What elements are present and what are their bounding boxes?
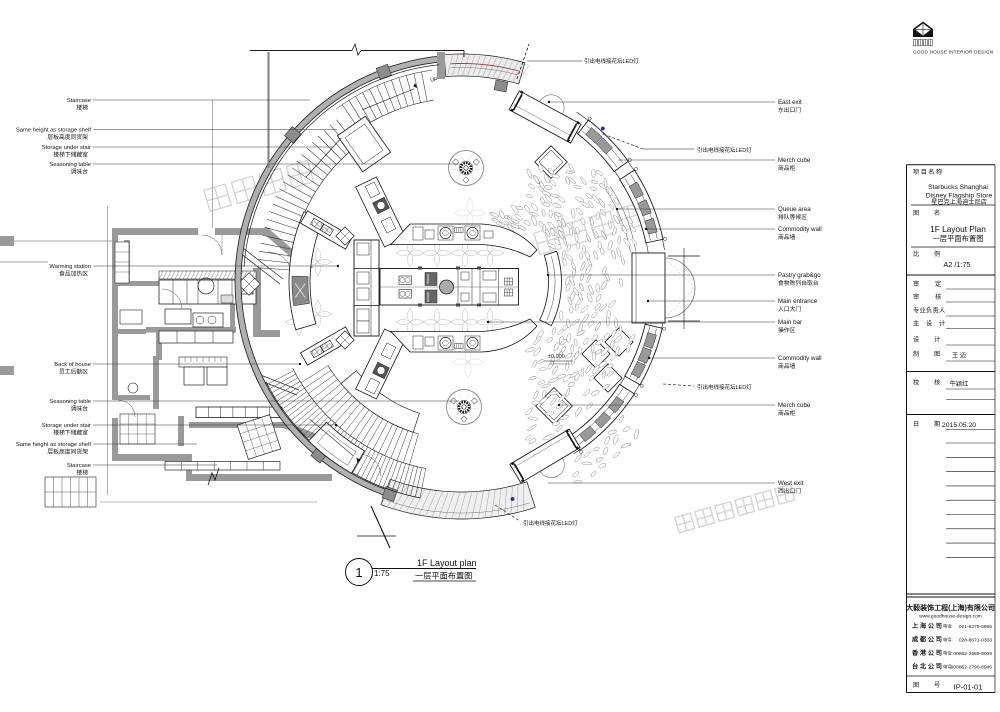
svg-text:图: 图 <box>913 682 919 689</box>
svg-text:电话:: 电话: <box>943 650 953 657</box>
svg-text:028-8671-0303: 028-8671-0303 <box>959 638 992 644</box>
svg-text:Pastry grab&go: Pastry grab&go <box>778 272 821 279</box>
svg-text:UP: UP <box>430 78 438 84</box>
svg-text:业: 业 <box>920 307 926 315</box>
svg-text:审: 审 <box>913 280 919 288</box>
svg-text:日: 日 <box>913 421 919 428</box>
svg-text:号: 号 <box>934 682 940 689</box>
svg-text:员工后勤区: 员工后勤区 <box>59 368 88 376</box>
svg-text:Same height as storage shelf: Same height as storage shelf <box>16 128 91 134</box>
svg-text:Starbucks Shanghai: Starbucks Shanghai <box>928 184 988 191</box>
svg-text:名: 名 <box>928 168 934 176</box>
svg-text:设: 设 <box>926 320 932 328</box>
svg-text:设: 设 <box>913 336 919 344</box>
svg-text:排队等候区: 排队等候区 <box>778 213 807 221</box>
svg-text:商品墙: 商品墙 <box>778 362 796 370</box>
svg-text:商品墙: 商品墙 <box>778 233 796 241</box>
svg-text:东出口门: 东出口门 <box>778 106 801 114</box>
svg-text:制: 制 <box>913 350 919 358</box>
svg-text:楼梯: 楼梯 <box>76 104 88 112</box>
svg-text:电话:: 电话: <box>943 636 953 643</box>
svg-text:Storage under stair: Storage under stair <box>42 423 91 429</box>
svg-text:±0.000: ±0.000 <box>548 354 565 360</box>
svg-text:Back of house: Back of house <box>54 362 91 368</box>
svg-text:电话:: 电话: <box>943 623 953 630</box>
svg-text:台 北 公 司: 台 北 公 司 <box>912 663 942 671</box>
svg-text:例: 例 <box>934 250 940 258</box>
svg-text:图: 图 <box>934 351 940 358</box>
svg-text:www.goodhouse-design.com: www.goodhouse-design.com <box>919 614 982 620</box>
svg-text:2015.05.20: 2015.05.20 <box>942 422 976 429</box>
svg-text:楼梯下储藏室: 楼梯下储藏室 <box>53 429 88 437</box>
svg-text:名: 名 <box>934 209 940 217</box>
svg-text:Merch cube: Merch cube <box>778 157 811 164</box>
svg-text:Staircase: Staircase <box>67 463 91 469</box>
svg-text:西出口门: 西出口门 <box>778 487 801 495</box>
svg-text:1:75: 1:75 <box>374 569 390 578</box>
svg-text:一层平面布置图: 一层平面布置图 <box>932 234 983 243</box>
svg-text:王 迈: 王 迈 <box>952 352 966 360</box>
svg-text:引出电线接花坛LED灯: 引出电线接花坛LED灯 <box>697 146 752 154</box>
svg-text:Commodity wall: Commodity wall <box>778 226 822 233</box>
svg-text:008862-2790-8946: 008862-2790-8946 <box>951 665 993 671</box>
svg-text:引出电线接花坛LED灯: 引出电线接花坛LED灯 <box>523 519 578 527</box>
svg-text:00852-2559-9009: 00852-2559-9009 <box>953 651 992 657</box>
svg-text:香 港 公 司: 香 港 公 司 <box>911 649 942 657</box>
svg-text:A2 /1:75: A2 /1:75 <box>943 260 970 269</box>
svg-text:专: 专 <box>913 307 919 315</box>
svg-text:大毅装饰工程(上海)有限公司: 大毅装饰工程(上海)有限公司 <box>906 603 995 612</box>
svg-text:核: 核 <box>934 379 940 387</box>
svg-text:East exit: East exit <box>778 99 802 106</box>
svg-text:层板高度同货架: 层板高度同货架 <box>47 133 88 141</box>
svg-text:食物陈列自取台: 食物陈列自取台 <box>778 279 819 287</box>
svg-text:引出电线接花坛LED灯: 引出电线接花坛LED灯 <box>697 383 752 391</box>
svg-text:定: 定 <box>935 280 941 288</box>
svg-text:目: 目 <box>921 169 927 176</box>
svg-text:计: 计 <box>939 320 945 328</box>
svg-text:一层平面布置图: 一层平面布置图 <box>415 571 472 581</box>
svg-text:项: 项 <box>913 169 919 176</box>
svg-text:食品加热区: 食品加热区 <box>59 270 88 278</box>
svg-text:Main entrance: Main entrance <box>778 298 818 305</box>
svg-text:021-6275-5965: 021-6275-5965 <box>959 624 992 630</box>
svg-text:比: 比 <box>913 250 919 258</box>
svg-text:审: 审 <box>913 293 919 301</box>
svg-text:Main bar: Main bar <box>778 319 802 326</box>
svg-text:商品柜: 商品柜 <box>778 409 796 417</box>
svg-text:West exit: West exit <box>778 480 804 487</box>
svg-text:层板高度同货架: 层板高度同货架 <box>47 448 88 456</box>
svg-text:上 海 公 司: 上 海 公 司 <box>912 622 942 630</box>
svg-text:入口大门: 入口大门 <box>778 305 801 313</box>
svg-text:引出电线接花坛LED灯: 引出电线接花坛LED灯 <box>584 57 639 65</box>
svg-text:1F Layout plan: 1F Layout plan <box>417 558 477 568</box>
svg-text:Commodity wall: Commodity wall <box>778 355 822 362</box>
svg-text:责: 责 <box>933 307 939 315</box>
svg-text:期: 期 <box>934 420 940 428</box>
svg-text:Staircase: Staircase <box>67 98 91 104</box>
svg-text:楼梯: 楼梯 <box>76 469 88 477</box>
svg-text:校: 校 <box>913 379 919 387</box>
svg-text:楼梯下储藏室: 楼梯下储藏室 <box>53 151 88 159</box>
svg-text:Merch cube: Merch cube <box>778 402 811 409</box>
svg-text:Seasoning table: Seasoning table <box>49 162 91 168</box>
svg-text:核: 核 <box>935 293 941 301</box>
svg-text:Seasoning table: Seasoning table <box>49 399 91 405</box>
svg-text:人: 人 <box>939 308 945 315</box>
svg-text:图: 图 <box>913 210 919 217</box>
svg-text:操作区: 操作区 <box>778 326 796 334</box>
svg-text:Storage under stair: Storage under stair <box>42 145 91 151</box>
svg-text:Same height as storage shelf: Same height as storage shelf <box>16 442 91 448</box>
svg-text:IP-01-01: IP-01-01 <box>954 683 983 692</box>
svg-text:调味台: 调味台 <box>71 405 89 413</box>
svg-text:计: 计 <box>934 336 940 344</box>
svg-text:称: 称 <box>936 168 942 176</box>
svg-text:牛颖红: 牛颖红 <box>950 380 969 388</box>
svg-text:星巴克上海迪士尼店: 星巴克上海迪士尼店 <box>931 198 987 206</box>
svg-text:商品柜: 商品柜 <box>778 164 796 172</box>
svg-text:主: 主 <box>913 320 919 328</box>
svg-text:GOOD HOUSE INTERIOR DESIGN: GOOD HOUSE INTERIOR DESIGN <box>913 50 993 55</box>
svg-text:1: 1 <box>355 565 362 580</box>
svg-text:Queue area: Queue area <box>778 206 811 213</box>
svg-text:1F Layout Plan: 1F Layout Plan <box>930 224 986 234</box>
svg-text:成 都 公 司: 成 都 公 司 <box>912 636 942 644</box>
svg-text:调味台: 调味台 <box>71 168 89 176</box>
svg-text:负: 负 <box>926 307 932 315</box>
svg-text:Warming station: Warming station <box>49 264 91 270</box>
